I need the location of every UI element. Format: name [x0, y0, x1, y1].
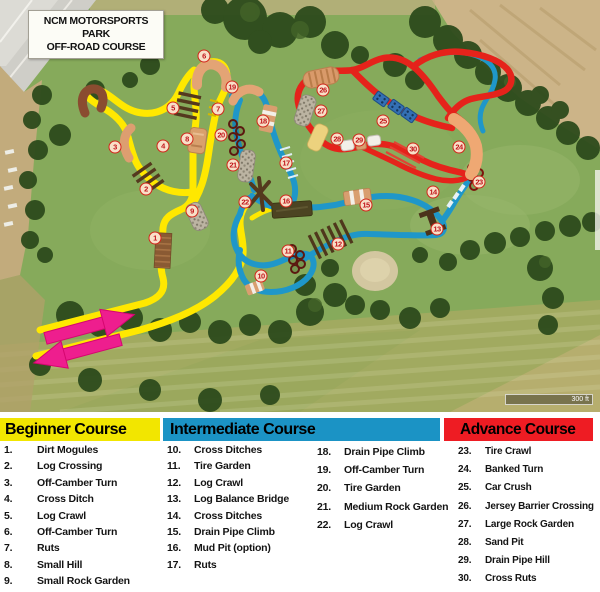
legend-item-number: 14. — [167, 510, 194, 522]
legend-item: 13.Log Balance Bridge — [167, 493, 289, 509]
legend-item: 2.Log Crossing — [4, 460, 130, 476]
legend-item-label: Ruts — [194, 559, 217, 571]
legend-item-label: Drain Pipe Climb — [344, 446, 425, 458]
intermediate-course-list-right: 18.Drain Pipe Climb19.Off-Camber Turn20.… — [317, 446, 448, 537]
advance-course-header: Advance Course — [444, 418, 593, 441]
course-marker-29: 29 — [353, 134, 366, 147]
legend-item: 18.Drain Pipe Climb — [317, 446, 448, 464]
legend-item: 10.Cross Ditches — [167, 444, 289, 460]
legend-item-number: 1. — [4, 444, 37, 456]
legend-item-label: Banked Turn — [485, 464, 543, 475]
legend-item: 12.Log Crawl — [167, 477, 289, 493]
legend-item-label: Log Crawl — [344, 519, 393, 531]
legend-item-number: 15. — [167, 526, 194, 538]
legend-item-number: 3. — [4, 477, 37, 489]
legend-item-number: 5. — [4, 510, 37, 522]
legend-item-label: Log Crawl — [37, 510, 86, 522]
course-marker-7: 7 — [212, 103, 225, 116]
legend-item-label: Small Hill — [37, 559, 82, 571]
course-marker-25: 25 — [377, 115, 390, 128]
map-title-box: NCM MOTORSPORTS PARK OFF-ROAD COURSE — [28, 10, 164, 59]
course-marker-24: 24 — [453, 141, 466, 154]
legend-item: 5.Log Crawl — [4, 510, 130, 526]
legend-item-number: 20. — [317, 482, 344, 494]
legend-item-label: Large Rock Garden — [485, 519, 574, 530]
legend-item-number: 30. — [458, 573, 485, 584]
legend-item-label: Cross Ditches — [194, 510, 262, 522]
legend-item: 20.Tire Garden — [317, 482, 448, 500]
legend-item-label: Cross Ruts — [485, 573, 536, 584]
course-marker-3: 3 — [109, 141, 122, 154]
legend-item-number: 2. — [4, 460, 37, 472]
offroad-course-flyer: { "title_box": { "line1": "NCM MOTORSPOR… — [0, 0, 600, 591]
course-marker-8: 8 — [181, 133, 194, 146]
legend-item-label: Drain Pipe Hill — [485, 555, 550, 566]
legend-item-number: 26. — [458, 501, 485, 512]
legend-item-label: Cross Ditch — [37, 493, 94, 505]
legend-item-number: 18. — [317, 446, 344, 458]
legend-item-number: 4. — [4, 493, 37, 505]
legend-item: 15.Drain Pipe Climb — [167, 526, 289, 542]
advance-course-list: 23.Tire Crawl24.Banked Turn25.Car Crush2… — [458, 446, 594, 592]
intermediate-course-list-left: 10.Cross Ditches11.Tire Garden12.Log Cra… — [167, 444, 289, 575]
legend-item: 6.Off-Camber Turn — [4, 526, 130, 542]
legend-item-label: Tire Crawl — [485, 446, 531, 457]
course-marker-13: 13 — [431, 223, 444, 236]
legend-item: 27.Large Rock Garden — [458, 519, 594, 537]
legend-item-label: Medium Rock Garden — [344, 501, 448, 513]
marker-layer: 1234567891011121314151617181920212223242… — [0, 0, 600, 412]
beginner-course-header: Beginner Course — [0, 418, 160, 441]
course-map: 1234567891011121314151617181920212223242… — [0, 0, 600, 412]
legend-item-number: 22. — [317, 519, 344, 531]
legend-item: 19.Off-Camber Turn — [317, 464, 448, 482]
legend-item-number: 13. — [167, 493, 194, 505]
legend-item-label: Off-Camber Turn — [344, 464, 424, 476]
legend-item: 29.Drain Pipe Hill — [458, 555, 594, 573]
legend-item: 25.Car Crush — [458, 482, 594, 500]
legend-item-number: 29. — [458, 555, 485, 566]
course-marker-16: 16 — [280, 195, 293, 208]
legend-item-number: 25. — [458, 482, 485, 493]
legend-item: 9.Small Rock Garden — [4, 575, 130, 591]
legend-item: 16.Mud Pit (option) — [167, 542, 289, 558]
legend-item: 26.Jersey Barrier Crossing — [458, 501, 594, 519]
legend-item-label: Dirt Mogules — [37, 444, 98, 456]
course-marker-22: 22 — [239, 196, 252, 209]
legend-item-label: Tire Garden — [194, 460, 251, 472]
legend-item-number: 21. — [317, 501, 344, 513]
course-marker-30: 30 — [407, 143, 420, 156]
legend-item: 22.Log Crawl — [317, 519, 448, 537]
legend-item-number: 19. — [317, 464, 344, 476]
course-marker-20: 20 — [215, 129, 228, 142]
legend-item-label: Off-Camber Turn — [37, 526, 117, 538]
legend-item-number: 16. — [167, 542, 194, 554]
legend-item-number: 23. — [458, 446, 485, 457]
course-marker-12: 12 — [332, 238, 345, 251]
course-marker-14: 14 — [427, 186, 440, 199]
legend-item-label: Sand Pit — [485, 537, 523, 548]
course-marker-11: 11 — [282, 245, 295, 258]
legend-item: 30.Cross Ruts — [458, 573, 594, 591]
legend-item-label: Drain Pipe Climb — [194, 526, 275, 538]
course-marker-5: 5 — [167, 102, 180, 115]
course-marker-9: 9 — [186, 205, 199, 218]
map-title-line2: OFF-ROAD COURSE — [32, 41, 160, 54]
legend-item-number: 11. — [167, 460, 194, 472]
legend-item: 7.Ruts — [4, 542, 130, 558]
course-marker-17: 17 — [280, 157, 293, 170]
course-marker-2: 2 — [140, 183, 153, 196]
course-marker-21: 21 — [227, 159, 240, 172]
legend-item: 4.Cross Ditch — [4, 493, 130, 509]
legend-item: 1.Dirt Mogules — [4, 444, 130, 460]
course-marker-4: 4 — [157, 140, 170, 153]
legend-item: 17.Ruts — [167, 559, 289, 575]
legend-item-label: Log Crawl — [194, 477, 243, 489]
legend-item: 23.Tire Crawl — [458, 446, 594, 464]
legend-item-number: 27. — [458, 519, 485, 530]
course-legend: Beginner Course Intermediate Course Adva… — [0, 412, 600, 591]
course-marker-26: 26 — [317, 84, 330, 97]
course-marker-10: 10 — [255, 270, 268, 283]
legend-item: 21.Medium Rock Garden — [317, 501, 448, 519]
legend-item-number: 10. — [167, 444, 194, 456]
legend-item-number: 9. — [4, 575, 37, 587]
scale-label: 300 ft — [571, 396, 589, 403]
legend-item-number: 24. — [458, 464, 485, 475]
legend-item-label: Small Rock Garden — [37, 575, 130, 587]
course-marker-28: 28 — [331, 133, 344, 146]
legend-item-number: 17. — [167, 559, 194, 571]
legend-item: 24.Banked Turn — [458, 464, 594, 482]
course-marker-6: 6 — [198, 50, 211, 63]
legend-item-label: Mud Pit (option) — [194, 542, 271, 554]
legend-item-label: Log Balance Bridge — [194, 493, 289, 505]
legend-item-number: 28. — [458, 537, 485, 548]
legend-item-label: Cross Ditches — [194, 444, 262, 456]
beginner-course-list: 1.Dirt Mogules2.Log Crossing3.Off-Camber… — [4, 444, 130, 592]
legend-item: 8.Small Hill — [4, 559, 130, 575]
legend-item: 11.Tire Garden — [167, 460, 289, 476]
scale-bar: 300 ft — [505, 394, 593, 405]
legend-item-label: Jersey Barrier Crossing — [485, 501, 594, 512]
legend-item-label: Off-Camber Turn — [37, 477, 117, 489]
legend-item: 28.Sand Pit — [458, 537, 594, 555]
legend-item-number: 8. — [4, 559, 37, 571]
legend-item-label: Car Crush — [485, 482, 532, 493]
course-marker-1: 1 — [149, 232, 162, 245]
course-marker-19: 19 — [226, 81, 239, 94]
legend-item: 14.Cross Ditches — [167, 510, 289, 526]
legend-item-label: Ruts — [37, 542, 60, 554]
legend-item-number: 6. — [4, 526, 37, 538]
legend-item-number: 7. — [4, 542, 37, 554]
course-marker-15: 15 — [360, 199, 373, 212]
course-marker-18: 18 — [257, 115, 270, 128]
map-title-line1: NCM MOTORSPORTS PARK — [32, 15, 160, 41]
legend-item-label: Log Crossing — [37, 460, 102, 472]
course-marker-27: 27 — [315, 105, 328, 118]
intermediate-course-header: Intermediate Course — [163, 418, 440, 441]
legend-item-number: 12. — [167, 477, 194, 489]
course-marker-23: 23 — [473, 176, 486, 189]
legend-item-label: Tire Garden — [344, 482, 401, 494]
legend-item: 3.Off-Camber Turn — [4, 477, 130, 493]
